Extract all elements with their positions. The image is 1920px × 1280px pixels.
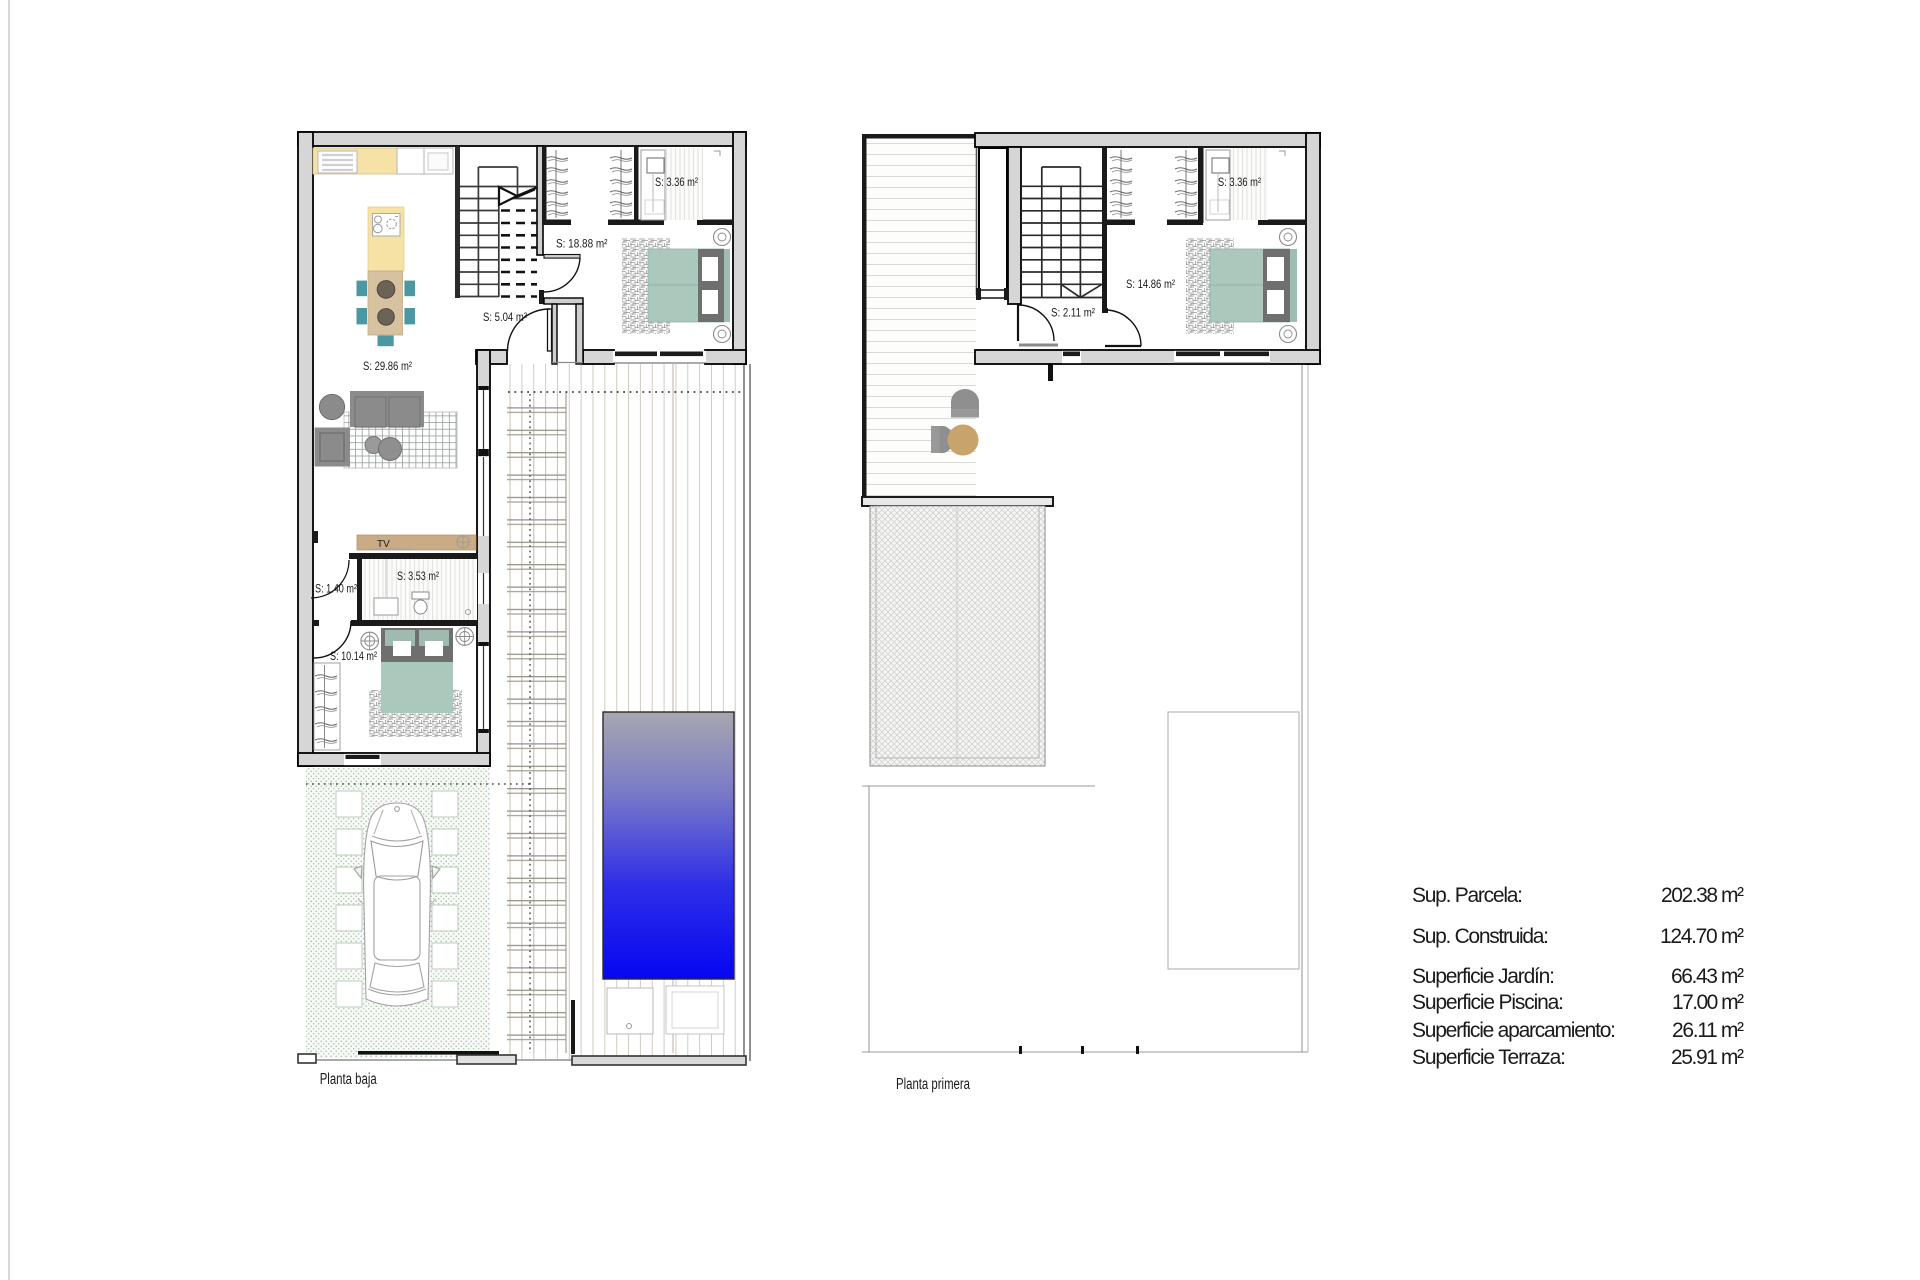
svg-text:Superficie aparcamiento:: Superficie aparcamiento:: [1412, 1019, 1616, 1042]
svg-text:124.70 m²: 124.70 m²: [1660, 925, 1744, 948]
svg-text:26.11 m²: 26.11 m²: [1672, 1019, 1744, 1042]
svg-text:S: 29.86 m²: S: 29.86 m²: [363, 359, 412, 373]
svg-text:S: 10.14 m²: S: 10.14 m²: [330, 649, 377, 663]
svg-text:202.38 m²: 202.38 m²: [1661, 884, 1744, 907]
svg-text:66.43 m²: 66.43 m²: [1671, 965, 1744, 988]
svg-text:S: 18.88 m²: S: 18.88 m²: [556, 237, 608, 251]
svg-text:S: 3.36 m²: S: 3.36 m²: [1218, 175, 1261, 189]
svg-text:S: 5.04 m²: S: 5.04 m²: [483, 310, 527, 324]
svg-text:S: 2.11 m²: S: 2.11 m²: [1051, 306, 1095, 320]
svg-text:S: 3.36 m²: S: 3.36 m²: [655, 175, 698, 189]
svg-text:S: 14.86 m²: S: 14.86 m²: [1126, 277, 1175, 291]
svg-text:17.00 m²: 17.00 m²: [1672, 991, 1744, 1014]
svg-text:Sup. Construida:: Sup. Construida:: [1412, 925, 1549, 948]
svg-text:Planta baja: Planta baja: [320, 1071, 377, 1088]
svg-text:Superficie Terraza:: Superficie Terraza:: [1412, 1046, 1566, 1069]
svg-text:S: 1.40 m²: S: 1.40 m²: [315, 582, 357, 596]
svg-text:Superficie Jardín:: Superficie Jardín:: [1412, 965, 1555, 988]
svg-text:TV: TV: [377, 539, 390, 550]
svg-text:Planta primera: Planta primera: [896, 1076, 970, 1093]
svg-text:S: 3.53 m²: S: 3.53 m²: [397, 569, 439, 583]
svg-text:Superficie Piscina:: Superficie Piscina:: [1412, 991, 1564, 1014]
svg-text:25.91 m²: 25.91 m²: [1671, 1046, 1744, 1069]
svg-text:Sup. Parcela:: Sup. Parcela:: [1412, 884, 1523, 907]
